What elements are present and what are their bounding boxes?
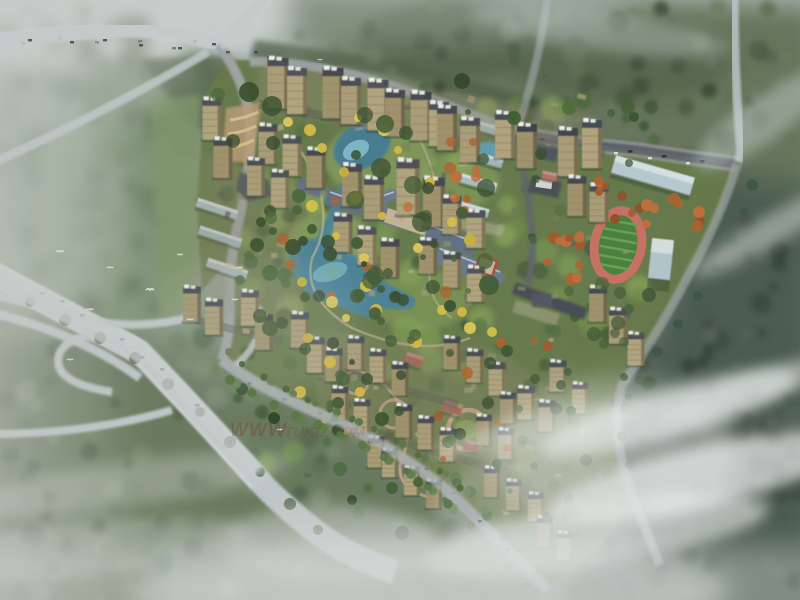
svg-text:.TUKU.COM: .TUKU.COM [280, 424, 365, 441]
